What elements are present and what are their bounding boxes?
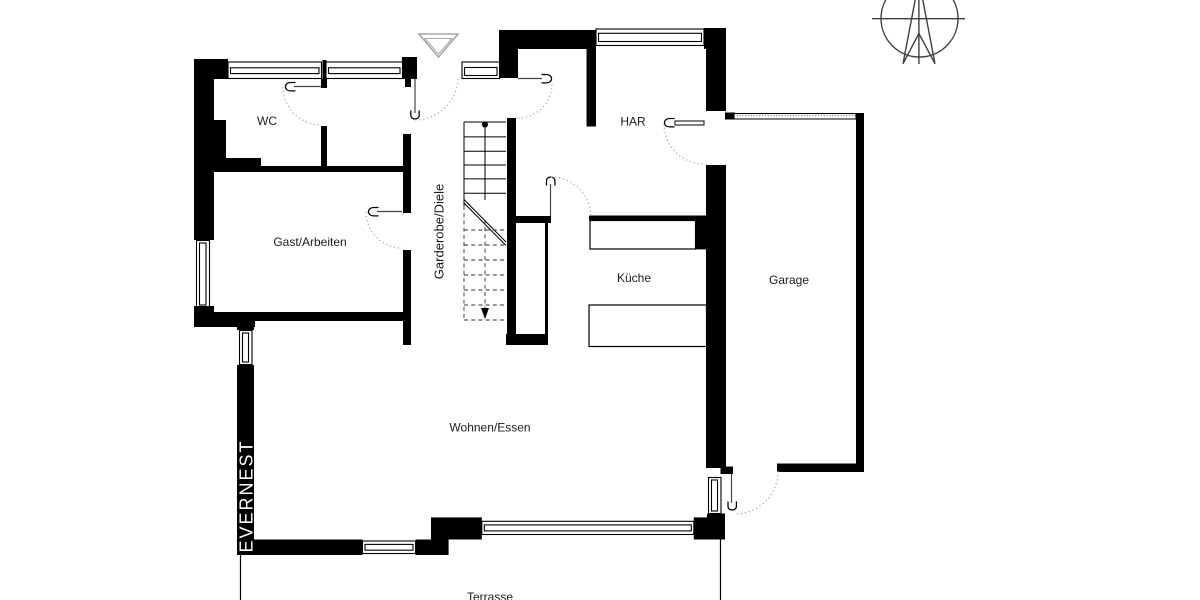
svg-text:WC: WC (257, 114, 277, 128)
svg-text:Wohnen/Essen: Wohnen/Essen (449, 421, 530, 435)
svg-text:Garage: Garage (769, 273, 809, 287)
svg-text:Garderobe/Diele: Garderobe/Diele (432, 184, 447, 279)
svg-text:Terrasse: Terrasse (467, 590, 513, 600)
svg-text:Küche: Küche (617, 271, 651, 285)
svg-text:Gast/Arbeiten: Gast/Arbeiten (273, 235, 346, 249)
svg-text:HAR: HAR (620, 115, 646, 129)
svg-text:EVERNEST: EVERNEST (237, 439, 257, 552)
